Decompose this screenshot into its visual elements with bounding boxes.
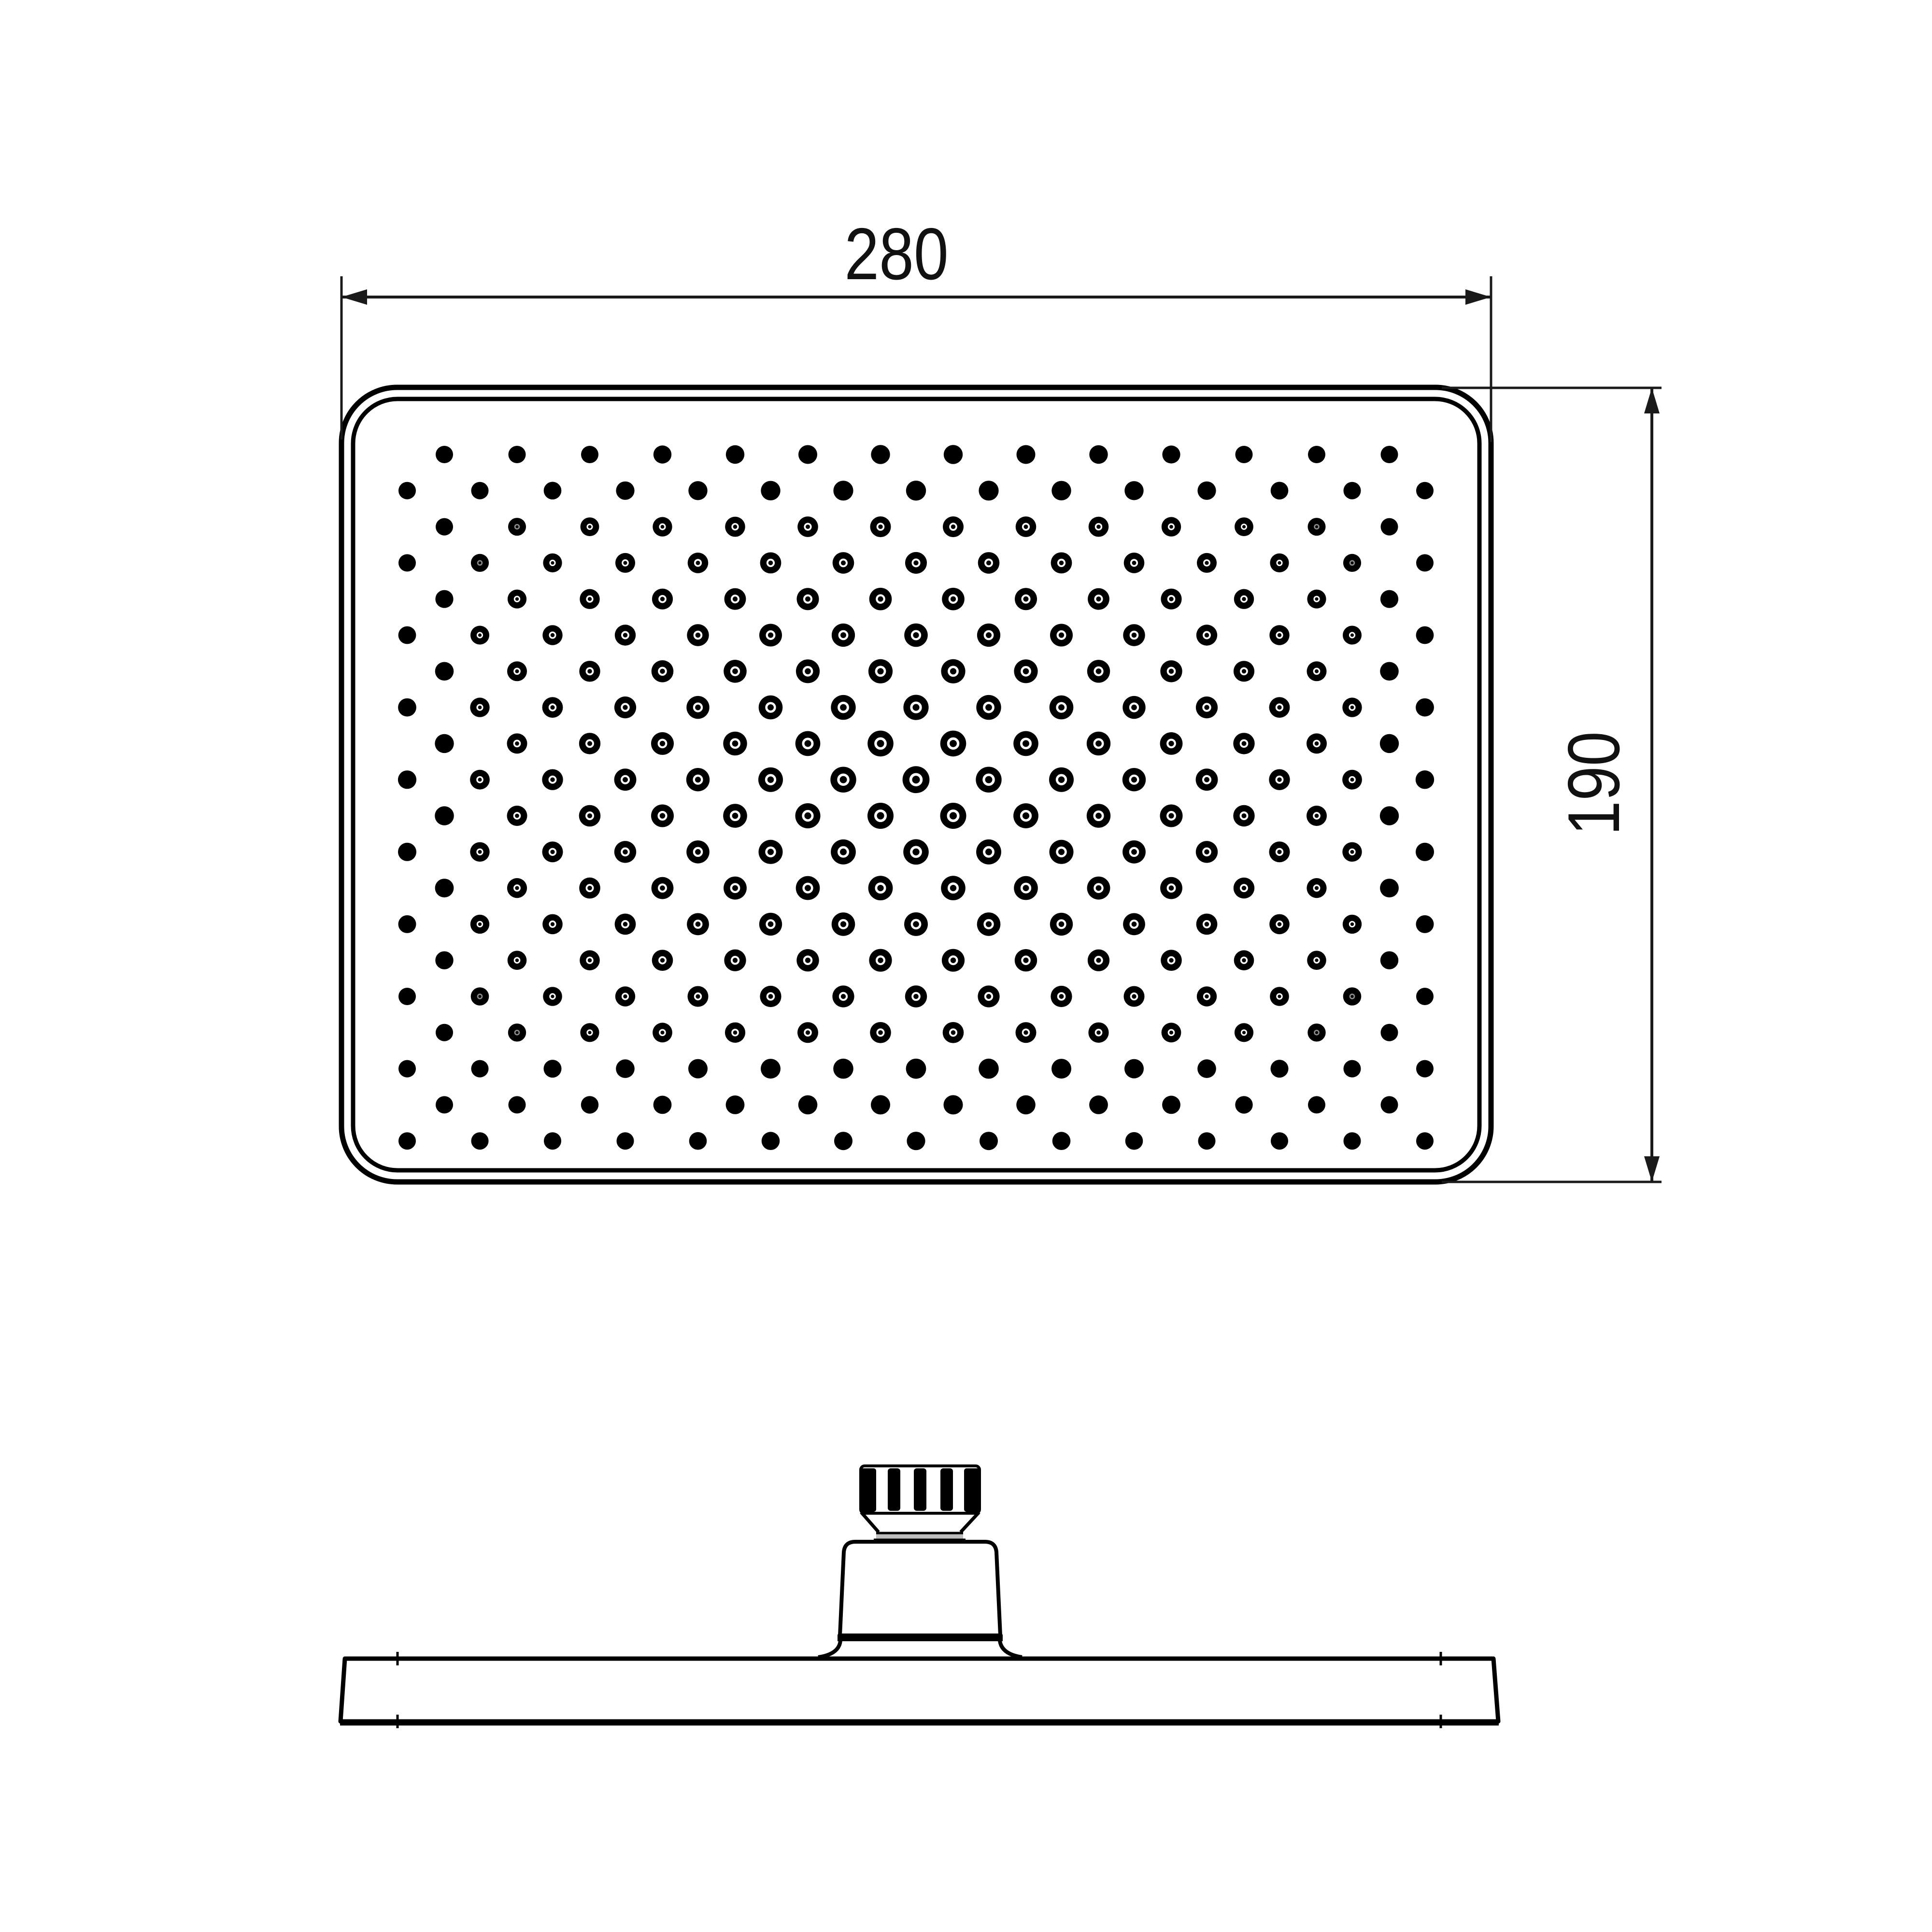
nozzle-dot	[833, 552, 854, 574]
nozzle-dot	[942, 949, 965, 972]
nozzle-dot	[579, 805, 601, 827]
nozzle-dot	[1123, 624, 1145, 646]
nozzle-dot	[652, 877, 674, 899]
nozzle-dot	[796, 949, 819, 971]
nozzle-dot	[544, 482, 562, 500]
nozzle-dot	[1269, 841, 1290, 862]
nozzle-dot	[798, 1095, 818, 1115]
side-view	[340, 1466, 1499, 1728]
nozzle-dot	[1087, 732, 1110, 755]
nozzle-dot	[796, 803, 821, 828]
nozzle-dot	[1087, 804, 1110, 827]
nozzle-dot	[759, 840, 783, 864]
nozzle-dot	[1344, 1060, 1361, 1078]
nozzle-dot	[1125, 1132, 1143, 1150]
nozzle-dot	[1160, 732, 1183, 755]
nozzle-dot	[688, 481, 707, 500]
nozzle-dot	[758, 767, 783, 792]
nozzle-dot	[398, 1132, 416, 1150]
nozzle-dot	[1233, 733, 1254, 754]
nozzle-dot	[831, 695, 855, 720]
nozzle-dot	[1342, 842, 1362, 862]
nozzle-dot	[867, 803, 894, 829]
nozzle-dot	[1050, 696, 1074, 720]
nozzle-dot	[1380, 590, 1398, 608]
nozzle-dot	[1197, 553, 1217, 573]
nozzle-dot	[580, 589, 599, 609]
shower-head-drawing: 280 190	[0, 0, 1932, 1932]
nozzle-dot	[543, 987, 562, 1006]
nozzle-dot	[653, 1096, 672, 1114]
nozzle-dot	[1343, 915, 1362, 934]
nozzle-dot	[1052, 1132, 1071, 1150]
nozzle-dot	[1197, 1059, 1216, 1078]
nozzle-dot	[1050, 624, 1073, 647]
nozzle-dot	[1233, 805, 1254, 826]
nozzle-dot	[1122, 696, 1145, 719]
top-view	[341, 387, 1491, 1182]
nozzle-dot	[435, 952, 453, 969]
connector-neck-band	[876, 1534, 963, 1539]
nozzle-dot	[761, 481, 780, 500]
nozzle-dot	[1087, 660, 1110, 682]
nozzle-dot	[760, 553, 781, 574]
nozzle-dot	[1380, 806, 1399, 825]
nozzle-dot	[615, 625, 636, 645]
nozzle-dot	[1162, 445, 1180, 463]
nozzle-dot	[652, 950, 673, 971]
nozzle-dot	[1416, 482, 1434, 499]
nozzle-dot	[615, 553, 635, 573]
nozzle-dot	[1416, 915, 1434, 933]
nozzle-dot	[725, 1023, 745, 1043]
nozzle-dot	[760, 986, 781, 1007]
nozzle-dot	[653, 445, 671, 463]
nozzle-dot	[832, 985, 854, 1007]
nozzle-dot	[471, 482, 489, 499]
nozzle-dot	[1124, 553, 1145, 573]
connector-stem	[818, 1466, 1022, 1657]
nozzle-dot	[1013, 731, 1038, 756]
nozzle-dot	[1015, 588, 1037, 610]
nozzle-dot	[615, 986, 635, 1006]
nozzle-dot	[1381, 446, 1398, 463]
nozzle-dot	[509, 446, 526, 463]
nozzle-dot	[1343, 554, 1361, 572]
nozzle-dot	[1196, 768, 1218, 791]
nozzle-dot	[903, 839, 929, 865]
nozzle-dot	[651, 732, 674, 755]
nozzle-dot	[614, 696, 636, 718]
nozzle-dot	[944, 445, 963, 464]
nozzle-dot	[1416, 698, 1434, 717]
nozzle-dot	[1122, 840, 1146, 864]
nozzle-dot	[871, 445, 890, 464]
nozzle-dot	[1269, 914, 1290, 935]
nozzle-dot	[1160, 877, 1182, 899]
nozzle-dot	[976, 767, 1001, 793]
nozzle-dot	[1087, 877, 1110, 900]
nozzle-dot	[581, 1096, 598, 1113]
nozzle-dot	[436, 1096, 453, 1113]
arrow-down-icon	[1644, 1156, 1660, 1182]
nozzle-dot	[980, 1132, 998, 1150]
height-dimension-label: 190	[1552, 731, 1634, 836]
nozzle-dot	[470, 915, 489, 934]
nozzle-dot	[1416, 1060, 1434, 1078]
nozzle-dot	[869, 588, 892, 611]
technical-drawing-canvas: 280 190	[0, 0, 1932, 1932]
nozzle-dot	[1161, 950, 1182, 971]
nozzle-dot	[1344, 1132, 1361, 1150]
nozzle-dot	[868, 659, 893, 683]
nozzle-dot	[796, 659, 820, 683]
nozzle-dot	[1196, 841, 1218, 863]
nozzle-dot	[509, 1096, 526, 1113]
nozzle-dot	[906, 481, 926, 500]
nozzle-dot	[724, 588, 746, 610]
nozzle-dot	[832, 624, 855, 647]
nozzle-dot	[907, 1132, 925, 1150]
nozzle-dot	[1416, 554, 1434, 571]
nozzle-dot	[1051, 986, 1072, 1007]
nozzle-dot	[688, 1059, 708, 1079]
nozzle-dot	[508, 951, 527, 970]
nozzle-dot	[1269, 769, 1290, 790]
nozzle-dot	[870, 1022, 891, 1043]
nozzle-dot	[398, 698, 416, 717]
nozzle-dot	[1089, 517, 1109, 537]
nozzle-dot	[867, 731, 894, 757]
nozzle-dot	[869, 949, 892, 972]
nozzle-dot	[398, 482, 416, 499]
nozzle-dot	[834, 1132, 852, 1150]
nozzle-dot	[976, 839, 1001, 865]
nozzle-dot	[976, 695, 1001, 720]
nozzle-dot	[833, 1059, 853, 1079]
nozzle-dot	[653, 1023, 672, 1042]
nozzle-dot	[398, 843, 416, 861]
nozzle-dot	[1051, 553, 1072, 574]
nozzle-dot	[1088, 1023, 1108, 1043]
nozzle-dot	[1271, 482, 1289, 500]
nozzle-dot	[1051, 1059, 1071, 1079]
nozzle-dot	[1381, 518, 1398, 536]
nozzle-dot	[1234, 589, 1254, 609]
nozzle-dot	[1381, 1096, 1398, 1113]
nozzle-dot	[905, 552, 927, 574]
nozzle-dot	[798, 445, 817, 464]
nozzle-dot	[1416, 988, 1434, 1005]
nozzle-dot	[1234, 661, 1254, 682]
nozzle-dot	[471, 1132, 489, 1150]
nozzle-dot	[686, 696, 709, 719]
nozzle-dot	[1235, 517, 1253, 536]
nozzle-dot	[762, 1132, 780, 1150]
nozzle-dot	[581, 446, 598, 463]
nozzle-dot	[1416, 1132, 1434, 1150]
nozzle-dot	[943, 516, 964, 537]
nozzle-dot	[944, 1095, 963, 1114]
nozzle-dot	[723, 804, 747, 828]
nozzle-dot	[903, 695, 928, 720]
nozzle-dot	[1161, 589, 1181, 610]
nozzle-dot	[616, 1059, 635, 1078]
nozzle-dot	[688, 986, 709, 1007]
nozzle-dot	[1013, 803, 1038, 828]
nozzle-dot	[1307, 661, 1327, 681]
nozzle-dot	[544, 1060, 562, 1078]
nozzle-dot	[1269, 625, 1289, 645]
nozzle-dot	[436, 518, 453, 536]
nozzle-dot	[941, 876, 966, 900]
nozzle-dot	[652, 589, 673, 610]
nozzle-dot	[1124, 986, 1145, 1007]
nozzle-dot	[1235, 1023, 1253, 1042]
nozzle-dot	[435, 662, 454, 681]
nozzle-dot	[726, 1095, 745, 1114]
nozzle-dot	[1050, 840, 1074, 864]
nozzle-dot	[1014, 659, 1037, 683]
nozzle-dot	[1416, 626, 1434, 644]
nozzle-dot	[904, 624, 928, 647]
nozzle-dot	[507, 661, 527, 681]
nozzle-dot	[1308, 1096, 1325, 1113]
nozzle-dot	[1197, 986, 1217, 1006]
nozzle-dot	[1308, 446, 1325, 463]
nozzle-dot	[1122, 768, 1146, 791]
nozzle-dot	[833, 481, 853, 500]
arrow-right-icon	[1465, 289, 1491, 305]
nozzle-dot	[542, 697, 563, 718]
nozzle-dot	[1270, 987, 1289, 1006]
nozzle-dot	[398, 554, 416, 571]
nozzle-dot	[687, 913, 709, 936]
nozzle-dot	[1343, 626, 1362, 645]
nozzle-dot	[542, 841, 563, 862]
nozzle-dot	[1380, 734, 1399, 753]
nozzle-dot	[1050, 913, 1073, 936]
nozzle-dot	[1416, 843, 1434, 861]
nozzle-dot	[1416, 770, 1434, 789]
nozzle-dot	[435, 879, 454, 897]
connector-taper-left	[861, 1512, 879, 1532]
nozzle-dot	[1307, 733, 1327, 753]
nozzle-dot	[470, 842, 489, 862]
nozzle-dot	[1234, 950, 1254, 970]
nozzle-dot	[796, 876, 820, 900]
nozzle-dot	[1016, 1022, 1037, 1043]
nozzle-dot	[871, 1095, 890, 1114]
nozzle-dot	[1380, 879, 1399, 897]
nozzle-dot	[1342, 697, 1362, 717]
connector-cone	[840, 1542, 1000, 1635]
nozzle-dot	[797, 1022, 818, 1043]
nozzle-dot	[1308, 518, 1326, 536]
nozzle-dot	[436, 1024, 453, 1041]
nozzle-dot	[979, 1059, 999, 1079]
nozzle-dot	[1049, 767, 1074, 792]
nozzle-dot	[830, 767, 856, 793]
nozzle-dot	[470, 770, 490, 790]
nozzle-dot	[759, 624, 782, 647]
nozzle-dot	[615, 914, 636, 935]
nozzle-dot	[1270, 554, 1289, 572]
nozzle-dot	[1196, 914, 1218, 935]
nozzle-dot	[725, 517, 745, 537]
nozzle-dot	[1123, 913, 1145, 936]
nozzle-dot	[1160, 660, 1182, 682]
nozzle-dot	[1089, 1095, 1108, 1114]
nozzle-dot	[1088, 950, 1109, 971]
nozzle-dot	[797, 588, 819, 610]
side-body-profile	[341, 1659, 1498, 1721]
nozzle-dot	[614, 841, 636, 863]
nozzle-dot	[1196, 625, 1217, 645]
nozzle-dot	[940, 803, 966, 829]
nozzle-dot	[1016, 516, 1037, 537]
nozzle-dot	[471, 1060, 489, 1078]
nozzle-dot	[617, 1132, 634, 1150]
nozzle-dot	[1198, 1132, 1216, 1150]
nozzle-dot	[1160, 805, 1183, 827]
connector-taper-right	[961, 1512, 979, 1532]
nozzle-dot	[1162, 1023, 1181, 1042]
nozzle-dot	[942, 588, 965, 611]
nozzle-dot	[581, 517, 599, 536]
nozzle-dot	[652, 660, 674, 682]
nozzle-dot	[1344, 482, 1361, 499]
nozzle-dot	[1381, 1024, 1398, 1041]
nozzle-dot	[398, 988, 416, 1005]
connector-flare-right	[1000, 1641, 1022, 1657]
nozzle-dot	[688, 553, 709, 573]
nozzle-dot	[542, 914, 563, 935]
nozzle-dot	[398, 1060, 416, 1078]
nozzle-dot	[687, 624, 709, 646]
nozzle-dot	[544, 1132, 561, 1150]
nozzle-dot	[832, 912, 855, 936]
nozzle-dot	[1162, 1096, 1180, 1114]
nozzle-dot	[542, 769, 563, 790]
nozzle-dot	[689, 1132, 707, 1150]
nozzle-dot	[1124, 481, 1143, 500]
nozzle-dot	[507, 878, 527, 898]
nozzle-dot	[653, 517, 672, 536]
nozzle-dot	[471, 987, 489, 1006]
nozzle-dot	[542, 625, 562, 645]
nozzle-dot	[870, 516, 891, 537]
nozzle-dot	[435, 590, 453, 608]
nozzle-dot	[1196, 696, 1218, 718]
nozzle-dot	[1235, 1096, 1252, 1113]
nozzle-dot	[1016, 1095, 1036, 1115]
nozzle-dot	[759, 696, 783, 720]
nozzle-dot	[724, 660, 747, 683]
nozzle-dot	[398, 915, 416, 933]
nozzle-dot	[940, 731, 966, 757]
nozzle-dot	[759, 913, 782, 936]
nozzle-dot	[941, 659, 965, 683]
nozzle-dot	[1088, 588, 1109, 610]
nozzle-dot	[906, 1059, 926, 1079]
nozzle-dot	[943, 1022, 964, 1043]
nozzle-dot	[903, 766, 930, 793]
nozzle-dot	[1380, 662, 1399, 681]
arrow-left-icon	[341, 289, 367, 305]
nozzle-dot	[1162, 517, 1181, 536]
nozzle-dot	[507, 733, 527, 753]
nozzle-dot	[977, 624, 1000, 647]
nozzle-dot	[471, 554, 489, 572]
nozzle-dot	[1089, 445, 1108, 464]
nozzle-dot	[435, 806, 454, 825]
nozzle-dot	[507, 806, 527, 826]
nozzle-dot	[1380, 952, 1398, 969]
nozzle-dot	[796, 731, 821, 756]
nozzle-dot	[616, 482, 634, 500]
nozzle-dot	[508, 518, 526, 536]
nozzle-dot	[1342, 770, 1362, 790]
nozzle-dot	[398, 626, 416, 644]
nozzle-dot	[1307, 1023, 1325, 1041]
nozzle-dot	[978, 985, 999, 1007]
nozzle-dot	[435, 734, 454, 753]
nozzle-dot	[978, 552, 1000, 574]
nozzle-dot	[1343, 987, 1362, 1006]
nozzle-dot	[1271, 1132, 1288, 1150]
nozzle-dot	[726, 445, 744, 464]
nozzle-dot	[723, 732, 747, 755]
nozzle-dot	[1017, 445, 1036, 464]
width-dimension-label: 280	[844, 213, 949, 295]
nozzle-dot	[580, 950, 600, 970]
nozzle-dot	[1014, 876, 1038, 900]
nozzle-dot	[1197, 482, 1216, 500]
nozzle-dot	[979, 481, 998, 500]
nozzle-dot	[651, 805, 674, 827]
nozzle-dot	[1051, 481, 1071, 500]
nozzle-dot	[436, 446, 453, 463]
nozzle-dot	[868, 876, 893, 900]
arrow-up-icon	[1644, 388, 1660, 413]
nozzle-dot	[1269, 697, 1290, 718]
nozzle-dot	[686, 768, 710, 791]
nozzle-dot	[1307, 878, 1326, 898]
nozzle-dot	[1124, 1059, 1144, 1079]
nozzle-dot	[580, 1023, 599, 1042]
nozzle-dot	[579, 878, 600, 899]
nozzle-dot	[904, 912, 928, 936]
nozzle-dot	[1234, 878, 1254, 898]
nozzle-dot	[508, 1023, 526, 1041]
nozzle-dot	[1307, 590, 1326, 609]
nozzle-dot	[831, 839, 856, 865]
nozzle-dot	[1236, 446, 1253, 463]
nozzle-dot	[977, 912, 1001, 936]
nozzle-dot	[1307, 951, 1326, 970]
connector-flare-left	[818, 1641, 840, 1657]
nozzle-dot	[470, 697, 489, 717]
nozzle-dot	[761, 1059, 781, 1079]
nozzle-dot	[470, 626, 489, 645]
nozzle-dot	[724, 950, 746, 971]
nozzle-dot	[398, 770, 416, 789]
nozzle-dot	[905, 985, 927, 1007]
nozzle-dot	[579, 733, 600, 754]
nozzle-dot	[724, 877, 747, 900]
nozzle-dot	[1271, 1060, 1289, 1078]
